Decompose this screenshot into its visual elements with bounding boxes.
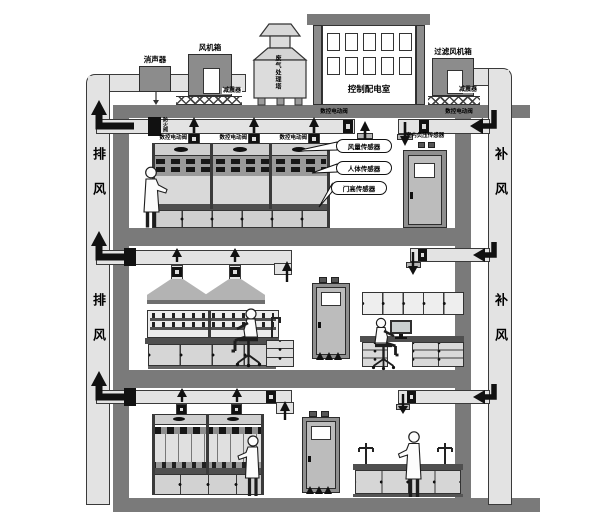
f2-fire-damper: [124, 248, 136, 266]
f1-supply-valve-label: 数控电动阀: [440, 110, 478, 116]
control-room-window: [345, 33, 358, 51]
fan-box-inlet: [203, 68, 220, 94]
f1-supply-valve: [419, 120, 429, 133]
silencer: [139, 66, 171, 92]
f3-hood-vent-oval: [227, 417, 239, 421]
f1-hood-valve-label: 数控电动阀: [213, 136, 247, 142]
silencer-label: 消声器: [130, 56, 180, 64]
control-room-window: [363, 57, 376, 75]
supply-shaft-label-lower: 补风: [493, 293, 506, 363]
control-room-right-wall: [416, 25, 425, 105]
f3-hood-valve: [177, 405, 186, 414]
f2-desk-right-pedestal: [412, 342, 464, 367]
f3-supply-diffuser: [396, 404, 410, 410]
ventilation-diagram: 排风 排风 补风 补风 消声器 风机箱 减震器 废气处理塔 控制配电室 过滤风机…: [0, 0, 600, 529]
callout-airflow-sensor: 风量传感器: [336, 139, 392, 153]
floor-slab-1: [113, 228, 471, 246]
f3-exhaust-valve: [266, 391, 276, 403]
f1-hood-grille-row: [156, 167, 326, 172]
damper-label-right: 减震器: [458, 87, 478, 93]
control-room-window: [363, 33, 376, 51]
f2-exhaust-elbow: [274, 263, 292, 275]
supply-shaft-label-upper: 补风: [493, 147, 506, 217]
control-room-window: [327, 33, 340, 51]
f1-fire-damper-label: 防火阀: [162, 117, 167, 132]
callout-airflow-sensor-label: 风量传感器: [348, 141, 381, 151]
tower-label: 废气处理塔: [274, 55, 280, 90]
f2-canopy-hood: [147, 279, 207, 301]
person-floor2-sitting-desk: [364, 316, 406, 372]
callout-sash-height-sensor-label: 门高传感器: [343, 183, 376, 193]
vibration-damper-right: [428, 96, 480, 105]
f3-hood-post: [152, 414, 155, 495]
person-floor2-sitting-bench: [224, 306, 270, 370]
f3-hood-vent-oval: [173, 417, 185, 421]
f1-pressure-sensor: [418, 142, 425, 148]
f1-supply-duct: [398, 119, 490, 134]
f2-canopy-hood: [205, 279, 265, 301]
f1-hood-post: [269, 143, 272, 209]
f1-hood-post: [210, 143, 213, 209]
left-shaft-elbow: [88, 76, 108, 90]
f1-hood-vent-oval: [292, 147, 306, 152]
f3-door-handle: [308, 456, 311, 462]
control-room-window: [399, 57, 412, 75]
ground-slab: [113, 498, 540, 512]
f3-hood-post: [206, 414, 209, 474]
f1-hood-interior: [152, 176, 330, 204]
control-room-label: 控制配电室: [322, 86, 416, 95]
f1-fume-hood-bank: [152, 143, 330, 228]
callout-human-sensor: 人体传感器: [336, 161, 392, 175]
f3-supply-valve: [407, 391, 416, 403]
callout-sash-height-sensor: 门高传感器: [331, 181, 387, 195]
f3-hood-valve: [232, 405, 241, 414]
exhaust-shaft-label-lower: 排风: [91, 293, 104, 363]
callout-human-sensor-label: 人体传感器: [348, 163, 381, 173]
damper-label-left: 减震器: [222, 88, 242, 94]
f1-exhaust-duct: [96, 119, 355, 134]
f2-canopy-valve: [230, 267, 240, 277]
f1-fire-damper: [148, 117, 161, 136]
left-wall: [113, 105, 129, 500]
f2-supply-diffuser: [406, 262, 421, 268]
fan-box-label: 风机箱: [186, 44, 234, 52]
f1-main-valve-label: 数控电动阀: [316, 110, 352, 116]
vibration-damper-left: [176, 96, 242, 105]
control-room-roof: [307, 14, 430, 25]
control-room-window: [399, 33, 412, 51]
control-room-window: [327, 57, 340, 75]
f1-hood-grille-row: [156, 159, 326, 164]
control-room-left-wall: [313, 25, 322, 105]
person-floor1-standing: [134, 164, 174, 230]
f2-shelf-post: [208, 310, 211, 338]
exhaust-shaft-label-upper: 排风: [91, 147, 104, 217]
f2-canopy-rim: [205, 300, 265, 304]
f1-pressure-sensor: [428, 142, 435, 148]
f3-door-window: [311, 426, 331, 440]
filter-fan-box-label: 过滤风机箱: [424, 48, 482, 56]
f2-canopy-valve: [172, 267, 182, 277]
f1-hood-valve-label: 数控电动阀: [153, 136, 187, 142]
f2-supply-valve: [418, 249, 427, 261]
f1-pressure-sensor-label: 室内负压传感器: [398, 134, 452, 140]
f1-door-handle: [410, 192, 413, 199]
person-floor3-standing-hood: [234, 433, 268, 499]
f1-main-exhaust-valve: [343, 120, 353, 133]
control-room-window: [345, 57, 358, 75]
right-supply-shaft: [488, 68, 512, 505]
floor-slab-2: [113, 370, 471, 388]
right-shaft-elbow: [490, 70, 509, 84]
f1-hood-base-cabinets: [152, 210, 330, 228]
f2-door-window: [321, 292, 341, 306]
f2-wall-cabinets: [362, 292, 464, 315]
f1-hood-valve-label: 数控电动阀: [273, 136, 307, 142]
control-room-window: [381, 57, 394, 75]
f2-canopy-rim: [147, 300, 207, 304]
f1-door-window: [414, 163, 435, 178]
left-exhaust-shaft: [86, 74, 110, 505]
f3-exhaust-elbow: [276, 402, 294, 414]
f3-fire-damper: [124, 388, 136, 406]
f2-side-table: [266, 340, 294, 367]
f2-door-handle: [318, 322, 321, 328]
f1-hood-vent-oval: [233, 147, 247, 152]
f1-hood-vent-oval: [174, 147, 188, 152]
control-room-window: [381, 33, 394, 51]
f1-hood-post: [327, 143, 330, 228]
person-floor3-standing-bench: [394, 428, 430, 500]
